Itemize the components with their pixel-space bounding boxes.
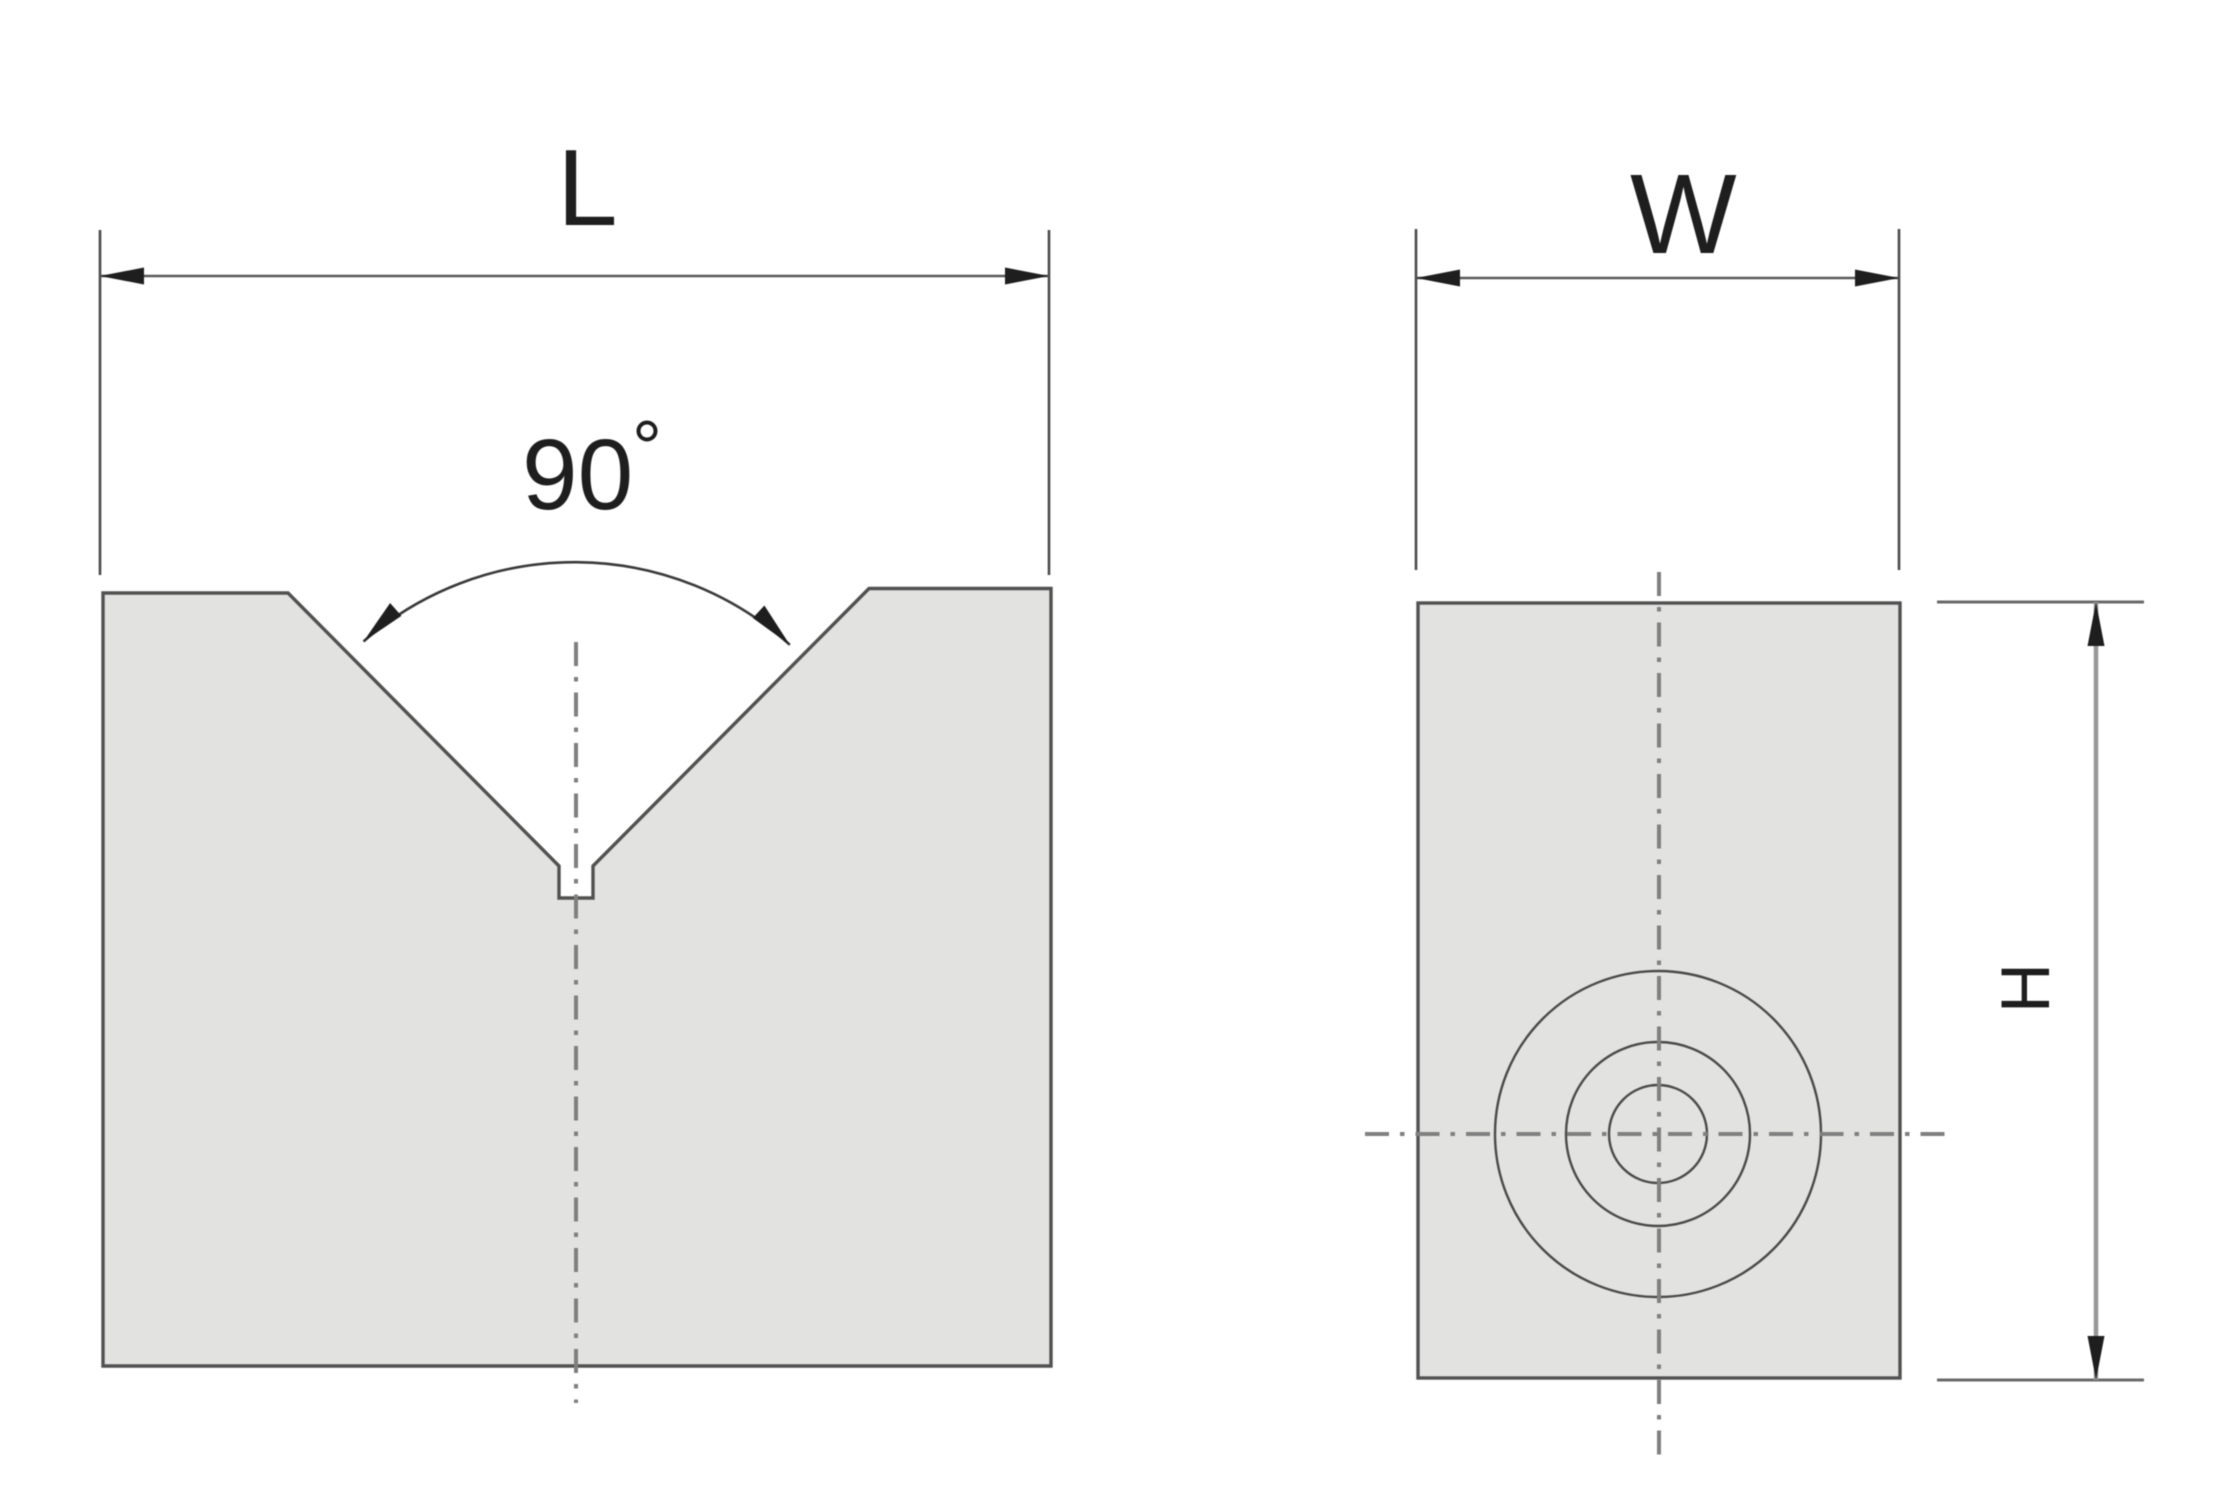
- svg-text:W: W: [1630, 151, 1737, 277]
- svg-text:L: L: [557, 127, 618, 249]
- svg-text:90: 90: [522, 419, 633, 531]
- svg-text:H: H: [1987, 963, 2064, 1013]
